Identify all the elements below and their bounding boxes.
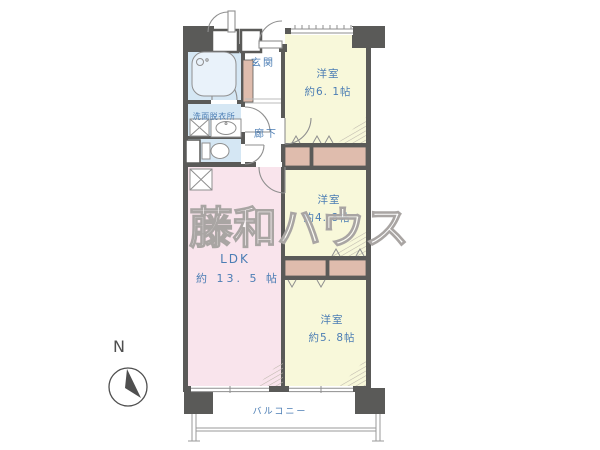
- wall-left: [183, 44, 188, 392]
- toilet-tank-icon: [202, 143, 210, 159]
- shaft-box: [186, 140, 200, 163]
- ldk-size-label: 約 13. 5 帖: [196, 271, 280, 285]
- room1-size-label: 約6. 1帖: [304, 85, 351, 98]
- gap-washroom-door: [241, 107, 245, 132]
- wall-closetB-top: [285, 256, 366, 260]
- washroom-label: 洗面脱衣所: [193, 111, 236, 121]
- compass-icon: N: [109, 337, 147, 406]
- balcony-lines: [188, 414, 384, 441]
- room3-size-label: 約5. 8帖: [308, 331, 355, 344]
- closet-divider-a: [310, 147, 313, 166]
- meterbox-door-leaf: [228, 11, 235, 32]
- closet-a-left: [285, 147, 310, 166]
- gap-room1-door: [281, 118, 285, 144]
- gap-ldk-door: [256, 162, 282, 167]
- hallway-label: 廊下: [254, 127, 278, 140]
- room1-name-label: 洋室: [317, 67, 340, 80]
- meter-box-1: [212, 30, 238, 52]
- wall-hall-room1: [281, 46, 285, 118]
- room3-name-label: 洋室: [321, 313, 344, 326]
- floorplan-image: 玄関 洗面脱衣所 廊下 洋室 約6. 1帖 洋室 約4. 8帖 洋室 約5. 8…: [0, 0, 600, 450]
- closet-a-right: [313, 147, 366, 166]
- watermark: 藤和ハウス: [189, 203, 409, 254]
- ldk-name-label: LDK: [220, 252, 250, 266]
- entrance-label: 玄関: [251, 56, 275, 69]
- gap-bath-door: [211, 100, 237, 104]
- toilet-bowl-icon: [211, 144, 229, 159]
- pillar-bottom-right: [355, 388, 385, 414]
- pillar-top-left: [183, 26, 214, 48]
- entrance-door-leaf: [259, 41, 282, 48]
- closet-b-left: [285, 260, 326, 276]
- meter-box-2: [241, 30, 261, 52]
- balcony-label: バルコニー: [253, 406, 308, 417]
- wall-closetA-top: [285, 143, 366, 147]
- closet-divider-b: [326, 260, 329, 276]
- closet-b-right: [329, 260, 366, 276]
- gap-toilet-door: [241, 144, 245, 164]
- meter-boxes: [212, 30, 261, 52]
- wall-ldk-rooms: [281, 144, 285, 392]
- compass-n-label: N: [113, 337, 125, 356]
- floorplan-svg: 玄関 洗面脱衣所 廊下 洋室 約6. 1帖 洋室 約4. 8帖 洋室 約5. 8…: [0, 0, 600, 450]
- wall-closetA-bottom: [285, 166, 366, 170]
- balcony-rail: [196, 428, 376, 431]
- wall-closetB-bottom: [285, 276, 366, 280]
